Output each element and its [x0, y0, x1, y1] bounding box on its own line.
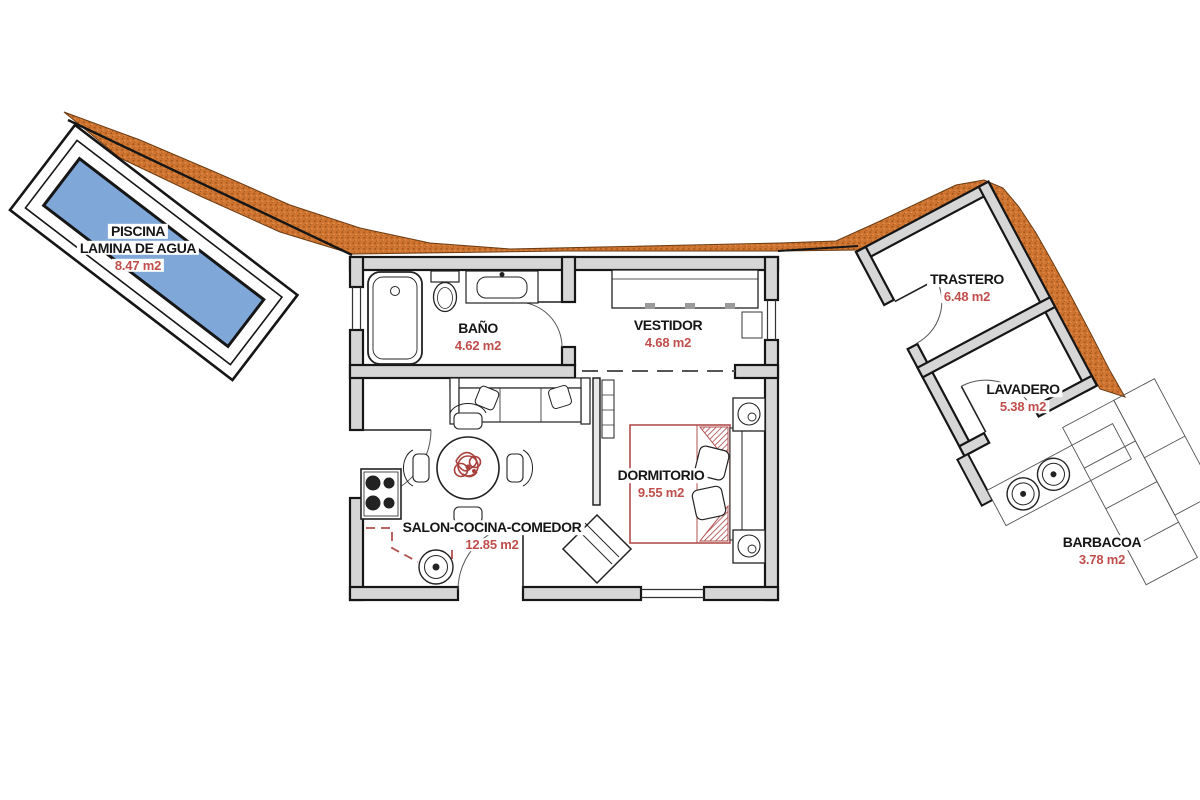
room-label-vestidor: VESTIDOR 4.68 m2	[631, 318, 705, 352]
room-name: BARBACOA	[1060, 535, 1144, 550]
room-area: 6.48 m2	[941, 290, 993, 304]
shelf	[742, 312, 762, 338]
room-label-bano: BAÑO 4.62 m2	[452, 321, 504, 355]
room-area: 5.38 m2	[997, 400, 1049, 414]
bedroom-shelf	[602, 380, 614, 438]
headboard	[730, 428, 742, 540]
room-name: PISCINA	[108, 224, 168, 239]
room-label-salon: SALON-COCINA-COMEDOR 12.85 m2	[400, 520, 585, 554]
room-name: DORMITORIO	[615, 468, 708, 483]
room-area: 12.85 m2	[462, 538, 521, 552]
room-name: LAMINA DE AGUA	[77, 241, 199, 256]
room-area: 4.68 m2	[642, 336, 694, 350]
wardrobe	[612, 270, 758, 308]
toilet-tank	[431, 271, 459, 282]
room-name: SALON-COCINA-COMEDOR	[400, 520, 585, 535]
room-area: 8.47 m2	[112, 258, 164, 272]
room-name: TRASTERO	[927, 272, 1007, 287]
room-label-piscina: PISCINA LAMINA DE AGUA 8.47 m2	[77, 224, 199, 274]
room-label-dormitorio: DORMITORIO 9.55 m2	[615, 468, 708, 502]
barbecue-wall	[957, 454, 992, 506]
sink-basin	[477, 277, 527, 298]
room-name: LAVADERO	[983, 382, 1062, 397]
room-area: 3.78 m2	[1076, 553, 1128, 567]
room-area: 4.62 m2	[452, 339, 504, 353]
room-name: BAÑO	[455, 321, 501, 336]
room-label-barbacoa: BARBACOA 3.78 m2	[1060, 535, 1144, 569]
room-area: 9.55 m2	[635, 486, 687, 500]
room-name: VESTIDOR	[631, 318, 705, 333]
kitchen-sink	[419, 550, 453, 584]
room-label-trastero: TRASTERO 6.48 m2	[927, 272, 1007, 306]
room-label-lavadero: LAVADERO 5.38 m2	[983, 382, 1062, 416]
stove	[361, 469, 401, 519]
floor-plan-canvas: PISCINA LAMINA DE AGUA 8.47 m2 BAÑO 4.62…	[0, 0, 1200, 800]
